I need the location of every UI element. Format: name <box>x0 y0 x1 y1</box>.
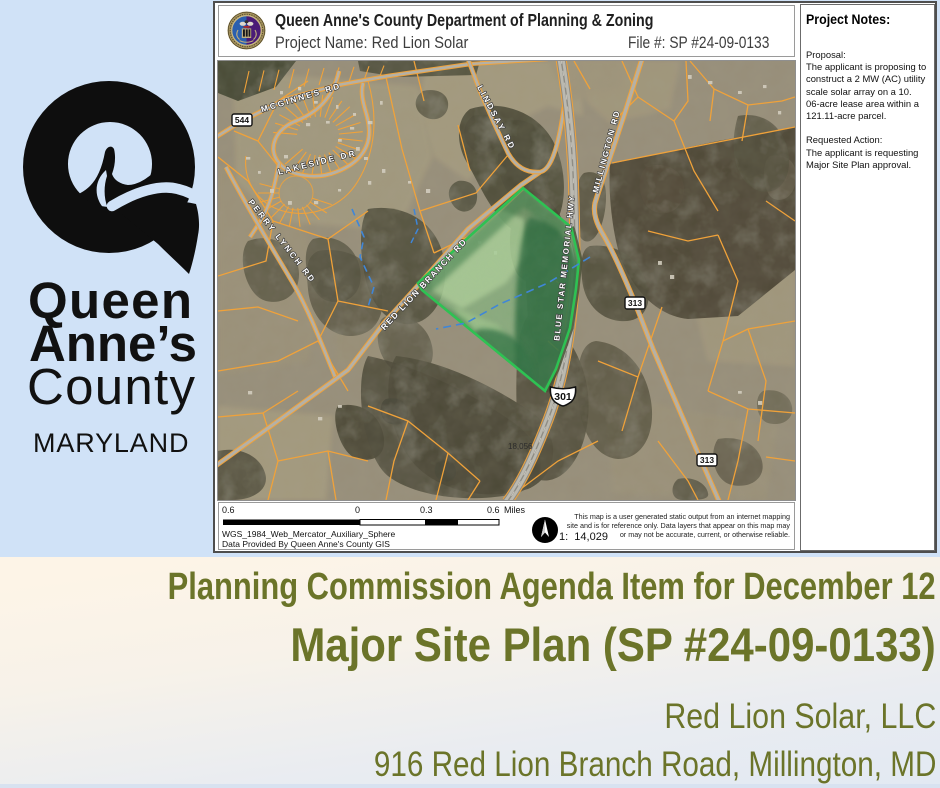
svg-text:County: County <box>27 358 196 415</box>
svg-text:MARYLAND: MARYLAND <box>33 428 192 458</box>
svg-text:18,056: 18,056 <box>508 442 533 451</box>
svg-text:313: 313 <box>700 455 714 465</box>
svg-text:301: 301 <box>554 391 572 403</box>
svg-text:313: 313 <box>628 298 642 308</box>
svg-text:544: 544 <box>235 115 249 125</box>
